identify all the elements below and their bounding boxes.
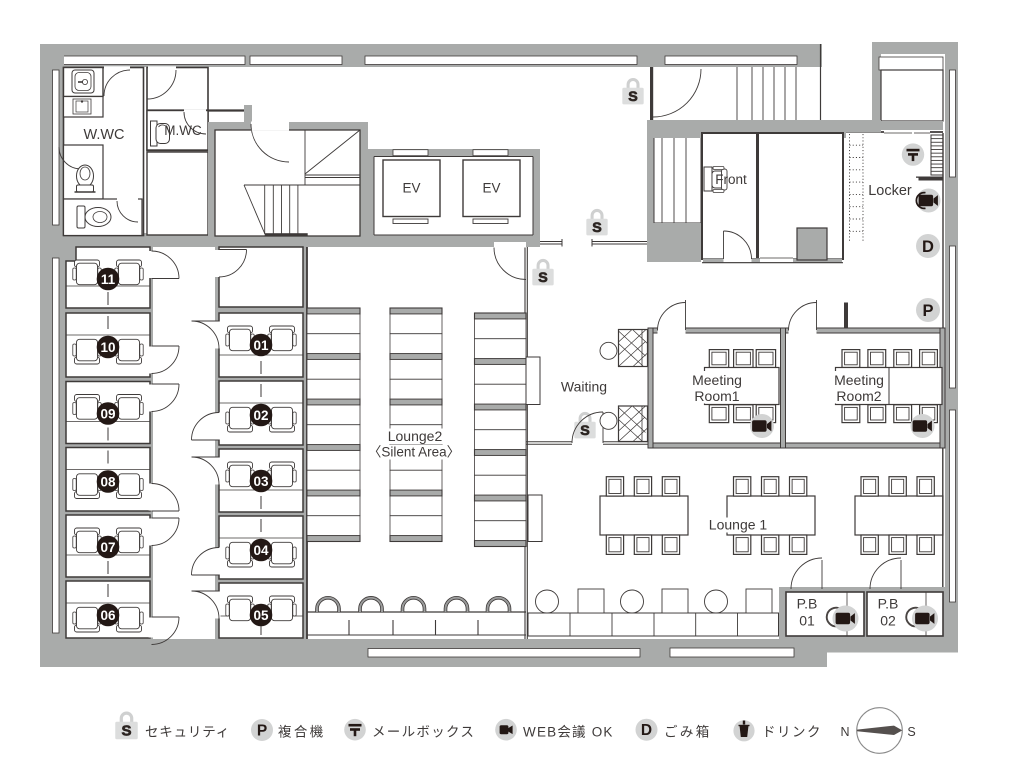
svg-text:S: S xyxy=(580,423,590,439)
svg-text:05: 05 xyxy=(253,608,269,623)
svg-text:S: S xyxy=(538,270,548,286)
svg-text:P.B: P.B xyxy=(878,596,899,612)
svg-text:W.WC: W.WC xyxy=(83,127,124,143)
svg-text:Meeting: Meeting xyxy=(834,372,884,388)
svg-text:EV: EV xyxy=(402,181,420,196)
svg-text:09: 09 xyxy=(100,406,115,421)
svg-text:S: S xyxy=(628,89,638,105)
svg-text:Lounge 1: Lounge 1 xyxy=(709,517,768,533)
svg-text:P: P xyxy=(257,723,267,740)
svg-text:P: P xyxy=(922,302,933,320)
svg-text:S: S xyxy=(907,725,915,739)
svg-text:Waiting: Waiting xyxy=(561,379,607,395)
svg-text:M.WC: M.WC xyxy=(164,123,202,138)
svg-text:02: 02 xyxy=(253,408,268,423)
svg-text:02: 02 xyxy=(880,613,896,629)
svg-text:P.B: P.B xyxy=(797,596,818,612)
svg-text:〈Silent Area〉: 〈Silent Area〉 xyxy=(368,445,460,460)
svg-text:Room2: Room2 xyxy=(836,388,881,404)
svg-text:Lounge2: Lounge2 xyxy=(388,428,443,444)
svg-text:11: 11 xyxy=(101,272,116,287)
svg-text:06: 06 xyxy=(100,608,116,623)
svg-text:10: 10 xyxy=(100,340,115,355)
svg-text:08: 08 xyxy=(100,474,116,489)
svg-text:複合機: 複合機 xyxy=(278,724,326,740)
svg-text:WEB会議 OK: WEB会議 OK xyxy=(523,724,614,740)
svg-text:S: S xyxy=(592,220,602,236)
svg-text:Meeting: Meeting xyxy=(692,372,742,388)
svg-text:セキュリティ: セキュリティ xyxy=(145,725,230,740)
svg-text:01: 01 xyxy=(253,338,269,353)
svg-text:D: D xyxy=(922,238,934,256)
svg-text:Locker: Locker xyxy=(868,183,912,199)
svg-text:Room1: Room1 xyxy=(694,388,739,404)
svg-text:EV: EV xyxy=(482,181,500,196)
svg-text:ドリンク: ドリンク xyxy=(762,725,822,740)
svg-text:07: 07 xyxy=(100,540,115,555)
svg-text:Front: Front xyxy=(715,172,747,187)
svg-text:メールボックス: メールボックス xyxy=(372,725,475,740)
svg-text:04: 04 xyxy=(253,543,269,558)
svg-text:S: S xyxy=(121,723,131,740)
svg-text:N: N xyxy=(840,725,849,739)
svg-text:D: D xyxy=(641,722,652,739)
svg-text:ごみ箱: ごみ箱 xyxy=(664,725,712,740)
svg-text:01: 01 xyxy=(799,613,815,629)
svg-text:03: 03 xyxy=(253,474,269,489)
